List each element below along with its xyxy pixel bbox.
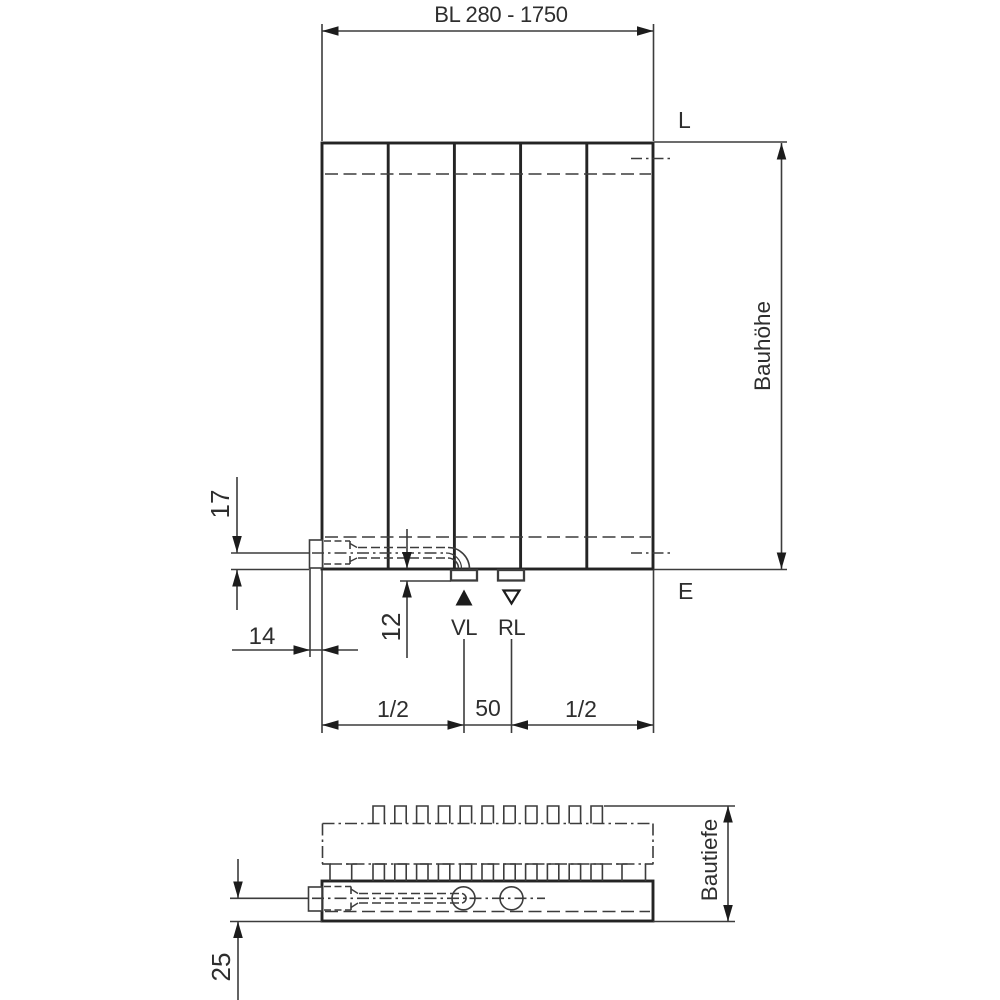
svg-text:E: E — [678, 578, 693, 604]
svg-text:50: 50 — [475, 695, 501, 721]
svg-text:17: 17 — [205, 490, 235, 519]
svg-text:12: 12 — [376, 613, 406, 642]
svg-text:1/2: 1/2 — [377, 696, 409, 722]
svg-text:1/2: 1/2 — [565, 696, 597, 722]
svg-text:25: 25 — [206, 953, 236, 982]
svg-text:BL 280 - 1750: BL 280 - 1750 — [434, 2, 568, 27]
svg-text:14: 14 — [249, 623, 276, 650]
svg-text:VL: VL — [451, 615, 477, 640]
svg-text:RL: RL — [498, 615, 525, 640]
svg-text:Bautiefe: Bautiefe — [697, 819, 722, 902]
svg-text:Bauhöhe: Bauhöhe — [750, 301, 775, 391]
svg-text:L: L — [678, 107, 691, 133]
